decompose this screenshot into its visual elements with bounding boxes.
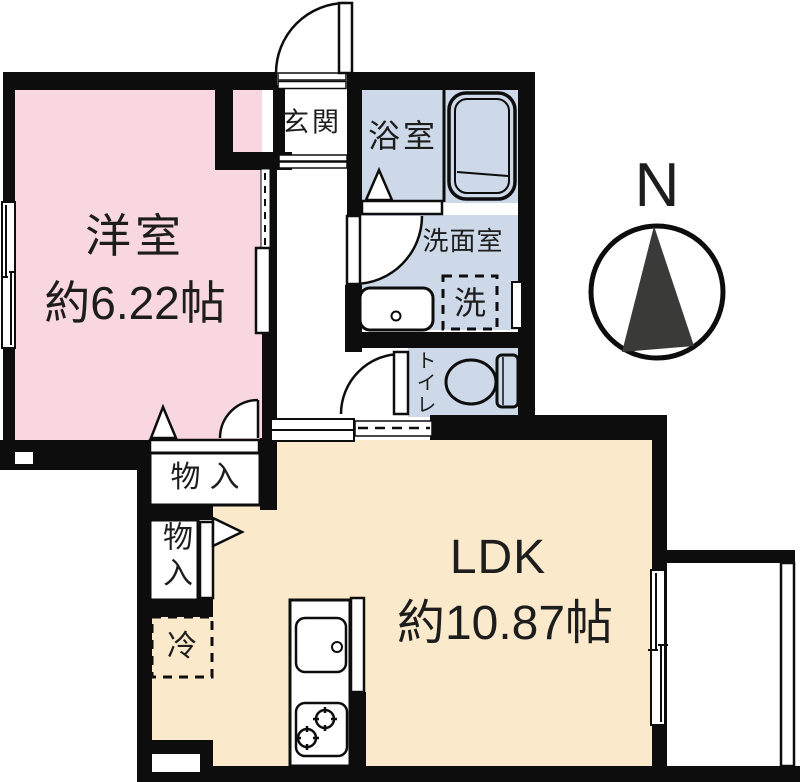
storage-upper-door bbox=[150, 440, 259, 453]
wall-top-right bbox=[347, 72, 535, 90]
western-room-size: 約6.22帖 bbox=[44, 280, 226, 326]
wall-vent-south bbox=[152, 754, 200, 772]
laundry-space-label: 洗 bbox=[454, 287, 486, 319]
wall-east-upper bbox=[518, 72, 535, 433]
wall-washroom-toilet bbox=[355, 332, 518, 348]
ldk-window bbox=[648, 570, 668, 725]
hall-ldk-door-2 bbox=[271, 430, 354, 441]
washroom-window bbox=[512, 282, 522, 328]
western-room-name: 洋室 bbox=[85, 213, 185, 259]
hall-ldk-door-1 bbox=[271, 419, 354, 430]
compass-north-label: N bbox=[635, 155, 680, 217]
entrance-label: 玄関 bbox=[282, 110, 342, 137]
entrance-sill-outer bbox=[278, 73, 346, 80]
entrance-step-1 bbox=[279, 155, 347, 161]
wall-top-left bbox=[5, 72, 277, 90]
compass bbox=[591, 226, 723, 358]
balcony-rail bbox=[781, 563, 794, 766]
western-room-sliding-door bbox=[256, 248, 270, 333]
refrigerator-space-label: 冷 bbox=[167, 632, 197, 662]
stove-icon bbox=[295, 703, 347, 756]
ldk-name: LDK bbox=[450, 534, 546, 582]
western-room-door-track bbox=[261, 169, 270, 249]
wall-kitchen-stub bbox=[351, 692, 366, 766]
west-window bbox=[2, 202, 15, 348]
floorplan: 洋室 約6.22帖 LDK 約10.87帖 玄関 浴室 洗面室 洗 トイレ 物入… bbox=[0, 0, 800, 782]
entrance-sill-inner bbox=[278, 82, 346, 89]
wall-vent-west bbox=[15, 452, 33, 464]
wall-storage-east bbox=[260, 438, 277, 510]
toilet-label: トイレ bbox=[414, 350, 434, 416]
wall-bottom bbox=[137, 766, 800, 782]
toilet-door bbox=[341, 352, 408, 414]
washroom-label: 洗面室 bbox=[422, 228, 503, 254]
wall-balcony-top bbox=[667, 550, 795, 563]
wall-hall-east-upper bbox=[347, 85, 362, 215]
entrance-step-2 bbox=[279, 162, 347, 168]
ldk-size: 約10.87帖 bbox=[397, 600, 613, 648]
toilet-fixture-icon bbox=[446, 355, 518, 407]
wall-ldk-top bbox=[430, 415, 667, 440]
wall-between-storages bbox=[137, 505, 213, 520]
bathroom-label: 浴室 bbox=[368, 120, 438, 152]
storage-upper-label: 物入 bbox=[162, 463, 249, 493]
kitchen-sink-icon bbox=[296, 618, 346, 672]
bathroom-door bbox=[362, 201, 442, 214]
entrance-door bbox=[276, 3, 352, 73]
kitchen-counter-return bbox=[351, 598, 364, 692]
storage-lower-label: 物入 bbox=[159, 521, 189, 593]
vanity-basin-icon bbox=[360, 288, 433, 330]
storage-lower-door bbox=[200, 522, 213, 598]
